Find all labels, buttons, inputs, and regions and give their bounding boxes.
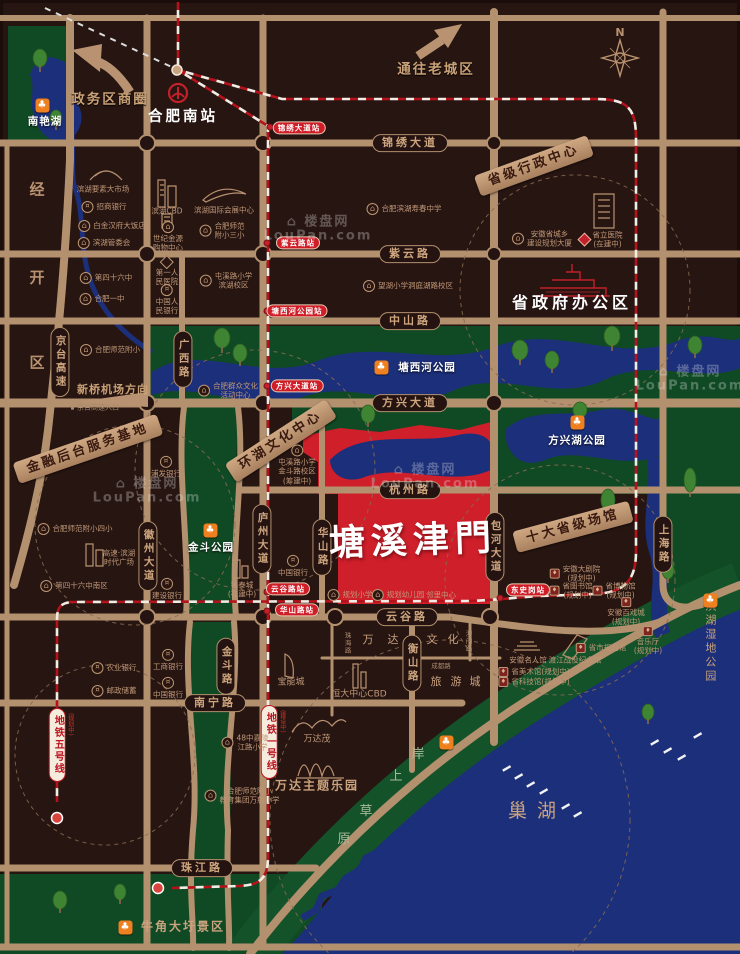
station-dongshigang: 东史岗站 [506, 583, 550, 596]
shore-char-an-text: 岸 [411, 747, 424, 763]
bank-icon [161, 578, 173, 590]
road-label-guangxi-road-text: 广西路 [176, 339, 189, 380]
station-yungu-road: 云谷路站 [266, 582, 310, 595]
road-label-fangxing-avenue-text: 方兴大道 [382, 396, 438, 410]
shore-char-yuan: 原 [337, 832, 350, 848]
poi-postal-savings: 邮政储蓄 [92, 685, 137, 697]
bld-icon [205, 790, 217, 802]
wanda-char-text: 城 [470, 675, 481, 689]
park-icon-tangxihe [374, 360, 389, 375]
poi-wanghu-primary: 望湖小学洞庭湖路校区 [363, 280, 453, 292]
poi-baijinhanfu-hotel: 白金汉府大饭店 [78, 220, 146, 232]
poi-first-peoples-hospital: 第一人 民医院 [156, 257, 179, 287]
wanda-char-text: 文 [427, 633, 438, 647]
poi-wanda-mao-text: 万达茂 [303, 734, 330, 745]
project-logo-text: 塘溪津門 [328, 516, 497, 567]
park-icon-fangxing-lake [570, 415, 585, 430]
park-icon [374, 360, 388, 374]
ven-icon [550, 586, 560, 596]
poi-gaosu-times-square: 高速·滨湖 时代广场 [103, 549, 135, 568]
road-label-nanning-road-text: 南宁路 [194, 696, 236, 710]
bld-icon [38, 523, 50, 535]
bld-icon [80, 293, 92, 305]
poi-planning-tower: 安徽省城乡 建设规划大厦 [512, 230, 572, 249]
ven-icon [593, 586, 603, 596]
poi-abc-bank-text: 农业银行 [107, 663, 137, 672]
poi-provincial-art-museum: 省美术馆(规划中) [498, 667, 569, 677]
bld-icon [291, 444, 303, 456]
poi-binhu-market: 滨湖要素大市场 [77, 184, 130, 193]
metro-line-1-label-note: (建设中) [278, 710, 286, 733]
station-fangxing-avenue: 方兴大道站 [271, 379, 324, 392]
poi-wanda-theme-park-text: 万达主题乐园 [275, 779, 359, 794]
park-label-tangxihe-park: 塘西河公园 [398, 361, 456, 374]
poi-gaosu-times-square-text: 高速·滨湖 时代广场 [103, 549, 135, 568]
wanda-char-text: 万 [363, 633, 374, 647]
park-icon-nanyan-lake [35, 98, 50, 113]
wanda-char: 旅 [431, 675, 442, 689]
title-xinqiao-airport-direction: 新桥机场方向 [77, 383, 149, 397]
park-icon [203, 523, 217, 537]
poi-provincial-science-museum: 省科技馆(规划中) [498, 677, 569, 687]
wanda-char-text: 游 [451, 675, 462, 689]
road-label-zhujiang-road: 珠江路 [171, 859, 233, 877]
road-label-luzhou-avenue: 庐州大道 [252, 504, 271, 574]
title-to-old-town-text: 通往老城区 [397, 62, 475, 79]
park-label-nanyan-lake: 南艳湖 [28, 115, 63, 128]
poi-neighborhood-center-text: 邻里中心 [426, 590, 456, 599]
bld-icon [198, 385, 210, 397]
poi-hengda-center-cbd: 恒大中心CBD [331, 689, 386, 700]
title-provincial-government-text: 省政府办公区 [512, 293, 632, 313]
poi-hengda-center-cbd-text: 恒大中心CBD [331, 689, 386, 700]
title-chao-lake: 巢湖 [508, 800, 566, 824]
poi-wanghu-primary-text: 望湖小学洞庭湖路校区 [378, 281, 453, 290]
poi-boc-bank-2: 中国银行 [278, 555, 308, 577]
park-icon-lakeshore [439, 735, 454, 750]
wanda-char: 游 [451, 675, 462, 689]
road-label-aomen-road-text: 澳门路 [464, 630, 472, 653]
bank-icon [162, 677, 174, 689]
banner-ten-provincial-venues: 十大省级场馆 [512, 501, 634, 554]
poi-binhu-market-text: 滨湖要素大市场 [77, 184, 130, 193]
title-hefei-south-station-text: 合肥南站 [148, 108, 218, 126]
bank-icon [82, 201, 94, 213]
poi-normal-primary-3: 合肥师范 附小三小 [200, 222, 245, 241]
park-icon [703, 593, 717, 607]
poi-dujiang-memorial: 渡江战役纪念馆 [549, 655, 602, 664]
watermark-text: ⌂ 楼盘网 LouPan.com [371, 464, 480, 493]
poi-provincial-science-museum-text: 省科技馆(规划中) [511, 677, 569, 686]
station-tangxihe-park-text: 塘西河公园站 [272, 306, 323, 315]
park-icon-wetland [703, 593, 718, 608]
poi-hefei-no1-high-school-text: 合肥一中 [95, 294, 125, 303]
poi-binhu-cbd: 滨湖CBD [151, 206, 182, 215]
bld-icon [200, 275, 212, 287]
watermark: ⌂ 楼盘网 LouPan.com [636, 366, 740, 395]
wanda-char-text: 旅 [431, 675, 442, 689]
poi-normal-primary-text: 合肥师范附小 [95, 345, 140, 354]
bld-icon [80, 272, 92, 284]
road-label-yungu-road: 云谷路 [376, 608, 438, 626]
bank-icon [287, 555, 299, 567]
poi-ccb-bank: 建设银行 [152, 578, 182, 600]
poi-icbc-bank: 工商银行 [153, 649, 183, 671]
title-chao-lake-text: 巢湖 [508, 800, 566, 824]
wanda-char: 万 [363, 633, 374, 647]
poi-planning-exhibition-hall-text: 省市规划馆 [589, 643, 627, 652]
road-label-zhongshan-road: 中山路 [379, 312, 441, 330]
poi-normal-primary-4-text: 合肥师范附小四小 [53, 524, 113, 533]
ven-icon [643, 626, 653, 636]
poi-binhu-committee-text: 滨湖管委会 [93, 238, 131, 247]
shore-char-cao: 草 [359, 804, 372, 820]
poi-no46-middle-school-text: 第四十六中 [95, 273, 133, 282]
wanda-char: 文 [427, 633, 438, 647]
park-label-niujiaodawei-text: 牛角大圩景区 [141, 920, 225, 935]
bank-icon [160, 456, 172, 468]
road-label-shanghai-road: 上海路 [653, 516, 672, 573]
title-jingtai-entrance-text: 京台高速入口 [77, 404, 119, 413]
road-label-huizhou-avenue-text: 徽州大道 [141, 529, 154, 583]
poi-boc-bank: 中国银行 [153, 677, 183, 699]
poi-provincial-library: 省图书馆 (规划中) [550, 582, 593, 601]
poi-tunxilu-primary-jindou: 屯溪路小学 金斗路校区 (筹建中) [278, 444, 316, 485]
station-jinxiu-avenue-text: 锦绣大道站 [278, 123, 321, 132]
poi-anhui-celebrity-hall: 安徽名人馆 [509, 655, 547, 664]
title-xinqiao-airport-direction-text: 新桥机场方向 [77, 383, 149, 397]
poi-planned-primary: 规划小学 [328, 589, 373, 601]
station-fangxing-avenue-text: 方兴大道站 [276, 381, 319, 390]
bld-icon [78, 237, 90, 249]
title-zhengwu-district: 政务区商圈 [71, 92, 149, 109]
poi-shouchun-middle-school: 合肥滨湖寿春中学 [367, 203, 442, 215]
road-label-jingtai-expressway: 京台高速 [50, 327, 69, 397]
poi-wanda-mao: 万达茂 [303, 734, 330, 745]
poi-baoneng-city: 宝能城 [277, 677, 304, 688]
poi-planned-kindergarten: 规划幼儿园 [372, 589, 425, 601]
shore-char-an: 岸 [411, 747, 424, 763]
hosp-icon [160, 255, 174, 269]
bld-icon [328, 589, 340, 601]
watermark: ⌂ 楼盘网 LouPan.com [93, 478, 202, 507]
hospr-icon [577, 233, 591, 247]
banner-provincial-admin-center: 省级行政中心 [474, 135, 594, 197]
poi-wanci-primary-text: 合肥师范附小 教育集团万慈小学 [220, 787, 280, 806]
banner-financial-base: 金融后台服务基地 [13, 414, 164, 485]
metro-line-5-label-note: (规划中) [66, 713, 74, 736]
poi-boc-bank-2-text: 中国银行 [278, 568, 308, 577]
road-label-chengdu-road-text: 成都路 [431, 662, 451, 670]
park-icon [439, 735, 453, 749]
poi-baixi-city-text: 安徽百戏城 (规划中) [607, 608, 645, 627]
poi-hefei-no1-high-school: 合肥一中 [80, 293, 125, 305]
poi-binhu-committee: 滨湖管委会 [78, 237, 131, 249]
park-icon [118, 920, 132, 934]
location-map: 锦绣大道紫云路中山路方兴大道杭州路云谷路南宁路珠江路京台高速广西路徽州大道庐州大… [0, 0, 740, 954]
poi-pboc-bank: 中国人 民银行 [156, 284, 179, 316]
ven-icon [621, 597, 631, 607]
park-label-jindou-park: 金斗公园 [188, 541, 234, 554]
title-zhengwu-district-text: 政务区商圈 [71, 92, 149, 109]
watermark: ⌂ 楼盘网 LouPan.com [264, 216, 373, 245]
wanda-char: 达 [388, 633, 399, 647]
poi-postal-savings-text: 邮政储蓄 [107, 686, 137, 695]
bld-icon [80, 344, 92, 356]
road-label-guangxi-road: 广西路 [173, 331, 192, 388]
poi-no48-jialing-primary: 48中嘉陵 江路小学 [221, 734, 268, 753]
wanda-char: 化 [448, 633, 459, 647]
poi-concert-hall: 音乐厅 (规划中) [634, 626, 662, 656]
banner-ten-provincial-venues-text: 十大省级场馆 [525, 507, 622, 548]
road-label-jindou-road-text: 金斗路 [219, 646, 232, 687]
poi-baijinhanfu-hotel-text: 白金汉府大饭店 [93, 221, 146, 230]
shore-char-yuan-text: 原 [337, 832, 350, 848]
poi-spd-bank: 浦发银行 [151, 456, 181, 478]
park-label-jindou-park-text: 金斗公园 [188, 541, 234, 554]
poi-no46-middle-school: 第四十六中 [80, 272, 133, 284]
poi-planned-primary-text: 规划小学 [343, 590, 373, 599]
wanda-char-text: 达 [388, 633, 399, 647]
banner-financial-base-text: 金融后台服务基地 [25, 420, 151, 477]
poi-shijijinyuan-mall-text: 世纪金源 购物中心 [153, 234, 183, 253]
bank-icon [162, 649, 174, 661]
poi-normal-primary-3-text: 合肥师范 附小三小 [215, 222, 245, 241]
title-binhu-wetland-park: 滨湖湿地公园 [703, 600, 717, 684]
poi-yintai-city: 银泰城 (在建中) [228, 581, 256, 600]
road-label-hengshan-road: 衡山路 [402, 635, 421, 692]
district-char-jing-text: 经 [29, 181, 44, 200]
district-char-kai-text: 开 [29, 269, 44, 288]
watermark-text: ⌂ 楼盘网 LouPan.com [636, 366, 740, 395]
poi-tunxilu-primary-binhu-text: 屯溪路小学 滨湖校区 [215, 272, 253, 291]
park-icon-jindou [203, 523, 218, 538]
bld-icon [372, 589, 384, 601]
shore-char-shang: 上 [389, 769, 402, 785]
road-label-aomen-road: 澳门路 [464, 630, 472, 653]
poi-provincial-library-text: 省图书馆 (规划中) [563, 582, 593, 601]
labels-layer: 锦绣大道紫云路中山路方兴大道杭州路云谷路南宁路珠江路京台高速广西路徽州大道庐州大… [0, 0, 740, 954]
bld-icon [40, 580, 52, 592]
poi-binhu-cbd-text: 滨湖CBD [151, 206, 182, 215]
ven-icon [550, 569, 560, 579]
poi-wanda-theme-park: 万达主题乐园 [275, 779, 359, 794]
bank-icon [92, 685, 104, 697]
title-jingtai-entrance: 京台高速入口 [71, 404, 119, 413]
poi-baixi-city: 安徽百戏城 (规划中) [607, 597, 645, 627]
road-label-jinxiu-avenue-text: 锦绣大道 [382, 136, 438, 150]
district-char-kai: 开 [29, 269, 44, 288]
poi-no48-jialing-primary-text: 48中嘉陵 江路小学 [236, 734, 268, 753]
bld-icon [162, 221, 174, 233]
ven-icon [576, 643, 586, 653]
poi-tunxilu-primary-jindou-text: 屯溪路小学 金斗路校区 (筹建中) [278, 457, 316, 485]
poi-baoneng-city-text: 宝能城 [277, 677, 304, 688]
poi-icbc-bank-text: 工商银行 [153, 662, 183, 671]
watermark-text: ⌂ 楼盘网 LouPan.com [93, 478, 202, 507]
road-label-luzhou-avenue-text: 庐州大道 [255, 512, 268, 566]
poi-no46-south: 第四十六中南区 [40, 580, 108, 592]
title-to-old-town: 通往老城区 [397, 62, 475, 79]
bank-icon [92, 662, 104, 674]
poi-normal-primary-4: 合肥师范附小四小 [38, 523, 113, 535]
district-char-jing: 经 [29, 181, 44, 200]
poi-ccb-bank-text: 建设银行 [152, 591, 182, 600]
road-label-ziyun-road: 紫云路 [379, 245, 441, 263]
compass-n-text: N [615, 26, 624, 40]
poi-tunxilu-primary-binhu: 屯溪路小学 滨湖校区 [200, 272, 253, 291]
poi-abc-bank: 农业银行 [92, 662, 137, 674]
title-binhu-wetland-park-text: 滨湖湿地公园 [703, 600, 717, 684]
compass-n: N [615, 26, 624, 40]
wanda-char-text: 化 [448, 633, 459, 647]
poi-anhui-grand-theatre-text: 安徽大剧院 (规划中) [563, 565, 601, 584]
park-icon-niujiaodawei [118, 920, 133, 935]
shore-char-shang-text: 上 [389, 769, 402, 785]
poi-cmb-bank-text: 招商银行 [97, 202, 127, 211]
park-icon [570, 415, 584, 429]
bank-icon [161, 284, 173, 296]
bld-icon [78, 220, 90, 232]
park-label-nanyan-lake-text: 南艳湖 [28, 115, 63, 128]
watermark-text: ⌂ 楼盘网 LouPan.com [264, 216, 373, 245]
poi-no46-south-text: 第四十六中南区 [55, 581, 108, 590]
poi-normal-primary: 合肥师范附小 [80, 344, 140, 356]
poi-anhui-celebrity-hall-text: 安徽名人馆 [509, 655, 547, 664]
park-label-tangxihe-park-text: 塘西河公园 [398, 361, 456, 374]
bld-icon [363, 280, 375, 292]
poi-cmb-bank: 招商银行 [82, 201, 127, 213]
project-logo: 塘溪津門 [328, 516, 497, 567]
park-icon [35, 98, 49, 112]
dot-icon [71, 407, 74, 410]
road-label-zhongshan-road-text: 中山路 [389, 314, 431, 328]
poi-yintai-city-text: 银泰城 (在建中) [228, 581, 256, 600]
road-label-zhuhai-road: 珠海路 [343, 632, 351, 655]
poi-mass-culture-center: 合肥群众文化 活动中心 [198, 382, 258, 401]
metro-line-5-label: 地铁五号线(规划中) [49, 708, 66, 782]
poi-provincial-hospital-text: 省立医院 (在建中) [593, 231, 623, 250]
road-label-ziyun-road-text: 紫云路 [389, 247, 431, 261]
title-hefei-south-station: 合肥南站 [148, 108, 218, 126]
poi-shouchun-middle-school-text: 合肥滨湖寿春中学 [382, 204, 442, 213]
shore-char-cao-text: 草 [359, 804, 372, 820]
poi-anhui-grand-theatre: 安徽大剧院 (规划中) [550, 565, 601, 584]
poi-planning-exhibition-hall: 省市规划馆 [576, 643, 627, 653]
poi-concert-hall-text: 音乐厅 (规划中) [634, 637, 662, 656]
bld-icon [512, 233, 524, 245]
poi-planning-tower-text: 安徽省城乡 建设规划大厦 [527, 230, 572, 249]
station-huashan-road: 华山路站 [275, 603, 319, 616]
station-tangxihe-park: 塘西河公园站 [267, 304, 328, 317]
road-label-shanghai-road-text: 上海路 [656, 524, 669, 565]
road-label-yungu-road-text: 云谷路 [386, 610, 428, 624]
road-label-huashan-road-text: 华山路 [315, 527, 328, 568]
road-label-jindou-road: 金斗路 [216, 638, 235, 695]
poi-intl-expo-center-text: 滨湖国际会展中心 [194, 205, 254, 214]
poi-shijijinyuan-mall: 世纪金源 购物中心 [153, 221, 183, 253]
ven-icon [498, 667, 508, 677]
poi-provincial-hospital: 省立医院 (在建中) [580, 231, 623, 250]
station-yungu-road-text: 云谷路站 [271, 584, 305, 593]
banner-provincial-admin-center-text: 省级行政中心 [486, 142, 582, 190]
district-char-qu: 区 [29, 354, 44, 373]
poi-mass-culture-center-text: 合肥群众文化 活动中心 [213, 382, 258, 401]
road-label-nanning-road: 南宁路 [184, 694, 246, 712]
district-char-qu-text: 区 [29, 354, 44, 373]
park-label-niujiaodawei: 牛角大圩景区 [141, 920, 225, 935]
poi-dujiang-memorial-text: 渡江战役纪念馆 [549, 655, 602, 664]
poi-intl-expo-center: 滨湖国际会展中心 [194, 205, 254, 214]
title-provincial-government: 省政府办公区 [512, 293, 632, 313]
poi-provincial-art-museum-text: 省美术馆(规划中) [511, 667, 569, 676]
station-dongshigang-text: 东史岗站 [511, 585, 545, 594]
station-jinxiu-avenue: 锦绣大道站 [273, 121, 326, 134]
watermark: ⌂ 楼盘网 LouPan.com [371, 464, 480, 493]
wanda-char: 城 [470, 675, 481, 689]
station-huashan-road-text: 华山路站 [280, 605, 314, 614]
metro-line-5-label-text: 地铁五号线 [51, 715, 64, 775]
poi-boc-bank-text: 中国银行 [153, 690, 183, 699]
road-label-chengdu-road: 成都路 [431, 662, 451, 670]
bld-icon [200, 225, 212, 237]
road-label-hengshan-road-text: 衡山路 [405, 643, 418, 684]
road-label-zhuhai-road-text: 珠海路 [343, 632, 351, 655]
bld-icon [367, 203, 379, 215]
park-label-fangxing-lake-park: 方兴湖公园 [548, 434, 606, 447]
poi-planned-kindergarten-text: 规划幼儿园 [387, 590, 425, 599]
road-label-zhujiang-road-text: 珠江路 [181, 861, 223, 875]
park-label-fangxing-lake-park-text: 方兴湖公园 [548, 434, 606, 447]
ven-icon [498, 677, 508, 687]
road-label-fangxing-avenue: 方兴大道 [372, 394, 448, 412]
poi-pboc-bank-text: 中国人 民银行 [156, 297, 179, 316]
poi-wanci-primary: 合肥师范附小 教育集团万慈小学 [205, 787, 280, 806]
poi-neighborhood-center: 邻里中心 [426, 590, 456, 599]
bld-icon [221, 737, 233, 749]
road-label-jingtai-expressway-text: 京台高速 [53, 335, 66, 389]
road-label-jinxiu-avenue: 锦绣大道 [372, 134, 448, 152]
